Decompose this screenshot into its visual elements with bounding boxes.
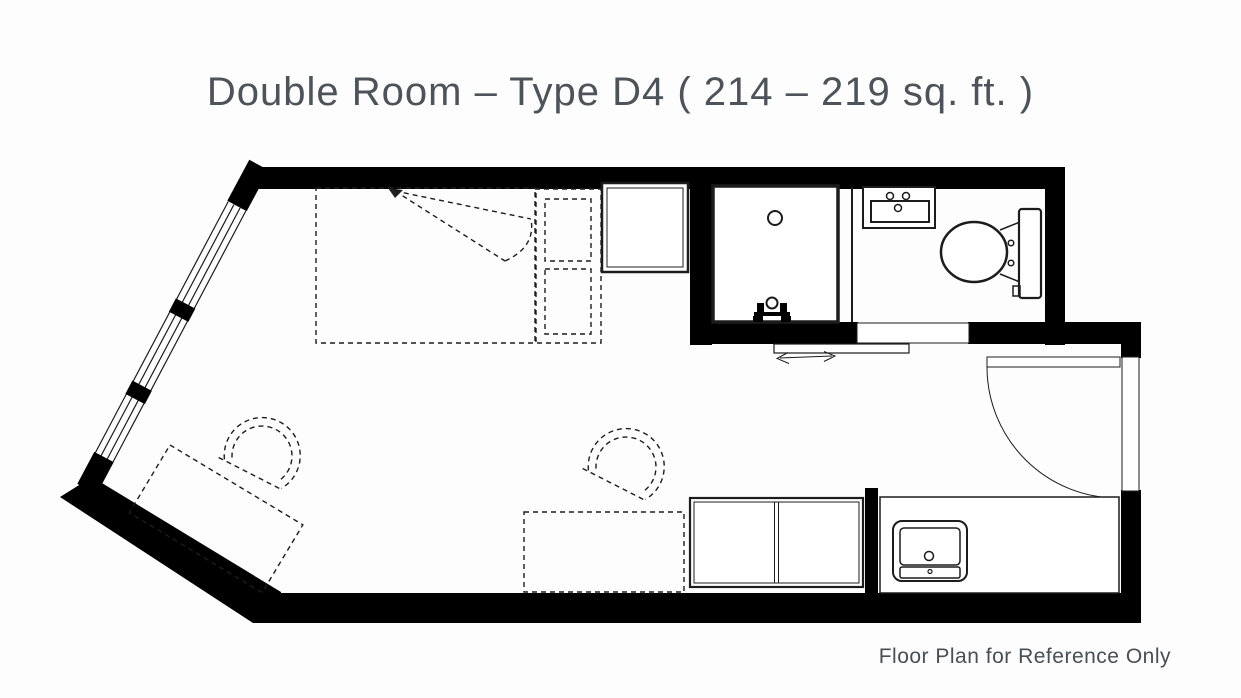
right-wall-upper bbox=[1121, 322, 1141, 358]
storage-cabinet bbox=[690, 498, 863, 587]
desk-middle bbox=[524, 512, 684, 592]
bathroom-left-wall bbox=[690, 185, 712, 345]
vanity-counter bbox=[880, 497, 1119, 593]
bathroom-right-wall bbox=[1045, 185, 1065, 345]
bathroom-sink bbox=[863, 187, 935, 228]
entry-door-leaf bbox=[987, 357, 1120, 367]
reference-note: Floor Plan for Reference Only bbox=[879, 645, 1171, 669]
window-mullion-2 bbox=[135, 386, 142, 399]
toilet bbox=[941, 209, 1041, 298]
floor-plan-page: Double Room – Type D4 ( 214 – 219 sq. ft… bbox=[0, 0, 1241, 698]
bathroom-bottom-wall bbox=[690, 322, 858, 344]
window-wall bbox=[87, 165, 259, 489]
wardrobe bbox=[602, 183, 688, 272]
lower-left-angled-wall bbox=[60, 477, 281, 623]
counter-sink bbox=[893, 521, 967, 581]
chair-left bbox=[219, 404, 314, 492]
chair-middle bbox=[583, 415, 678, 503]
bottom-wall bbox=[253, 593, 1141, 623]
floor-plan-drawing bbox=[0, 0, 1241, 698]
window-top-block bbox=[237, 165, 259, 206]
bathroom bbox=[713, 186, 1041, 322]
window-glazing bbox=[95, 202, 245, 462]
bedside-shelf-unit bbox=[535, 189, 601, 343]
window-bottom-block bbox=[87, 457, 104, 489]
entry-top-wall bbox=[968, 322, 1121, 344]
entry-door-swing-arc bbox=[987, 367, 1118, 498]
sliding-door-panel bbox=[774, 344, 909, 353]
sliding-door-opening bbox=[857, 323, 969, 343]
entry-door-jamb bbox=[1122, 357, 1139, 491]
shower bbox=[713, 186, 838, 322]
counter-stub-wall bbox=[865, 488, 878, 593]
bed bbox=[316, 188, 536, 343]
entry-door bbox=[987, 357, 1139, 498]
toilet-bowl bbox=[941, 222, 1007, 282]
toilet-tank bbox=[1019, 209, 1041, 298]
bed-blanket-fold bbox=[388, 188, 532, 261]
window-mullion-1 bbox=[179, 304, 186, 317]
